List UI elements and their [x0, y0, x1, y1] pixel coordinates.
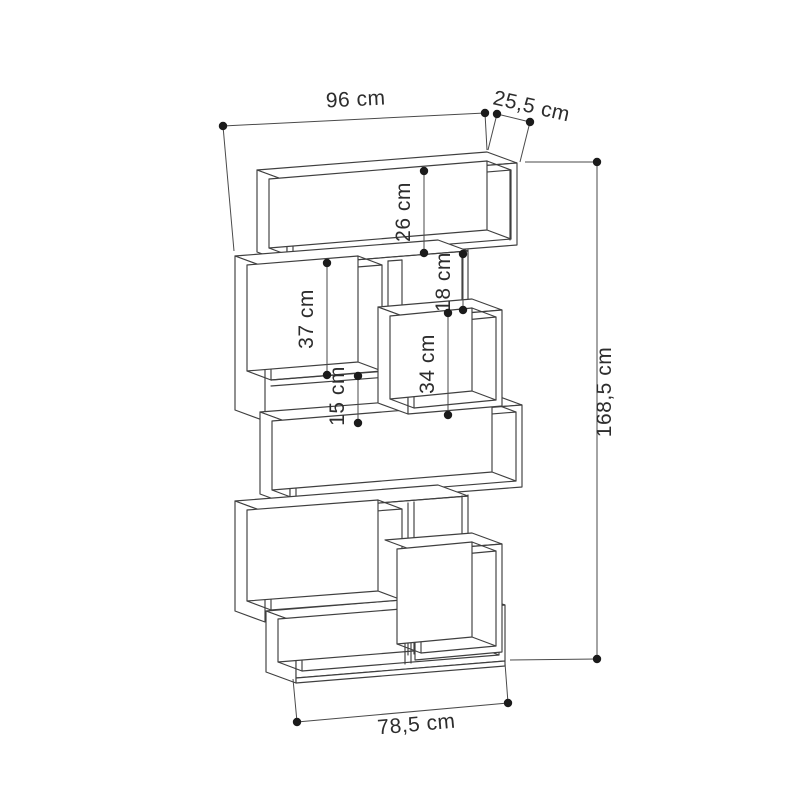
dim-label-right-gap: 18 cm	[432, 252, 455, 312]
dim-label-left-gap: 15 cm	[326, 366, 349, 426]
bookcase-dimension-drawing: 96 cm 25,5 cm 168,5 cm 78,5 cm 26 cm	[0, 0, 800, 800]
dim-overall-height: 168,5 cm	[510, 158, 616, 663]
right-box-34	[378, 299, 502, 414]
bottom-right-box	[385, 533, 502, 660]
dim-label-left-compartment: 37 cm	[295, 289, 318, 349]
dim-label-right-compartment: 34 cm	[416, 334, 439, 394]
dim-label-overall-width: 96 cm	[325, 86, 386, 112]
bookcase	[235, 152, 522, 683]
dim-label-overall-height: 168,5 cm	[593, 347, 616, 437]
dim-label-top-compartment: 26 cm	[392, 182, 415, 242]
dim-depth: 25,5 cm	[488, 86, 572, 162]
dimension-diagram-page: 96 cm 25,5 cm 168,5 cm 78,5 cm 26 cm	[0, 0, 800, 800]
